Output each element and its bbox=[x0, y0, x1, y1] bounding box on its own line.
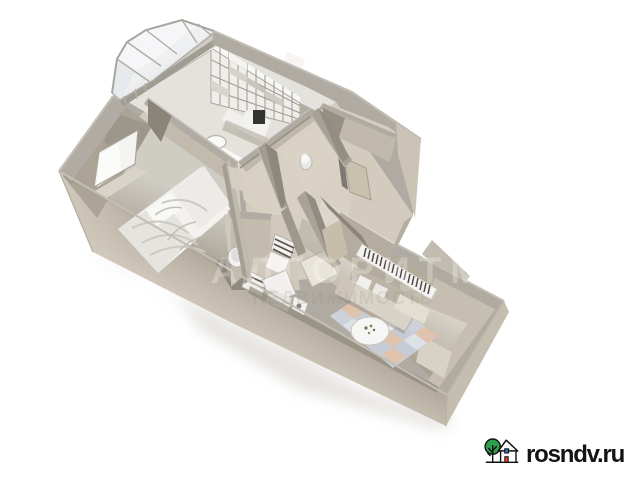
svg-text:НЕДВИЖИМОСТЬ: НЕДВИЖИМОСТЬ bbox=[252, 288, 434, 308]
svg-text:rosndv.ru: rosndv.ru bbox=[526, 441, 625, 468]
svg-text:АЛГОРИТМ: АЛГОРИТМ bbox=[211, 250, 490, 291]
